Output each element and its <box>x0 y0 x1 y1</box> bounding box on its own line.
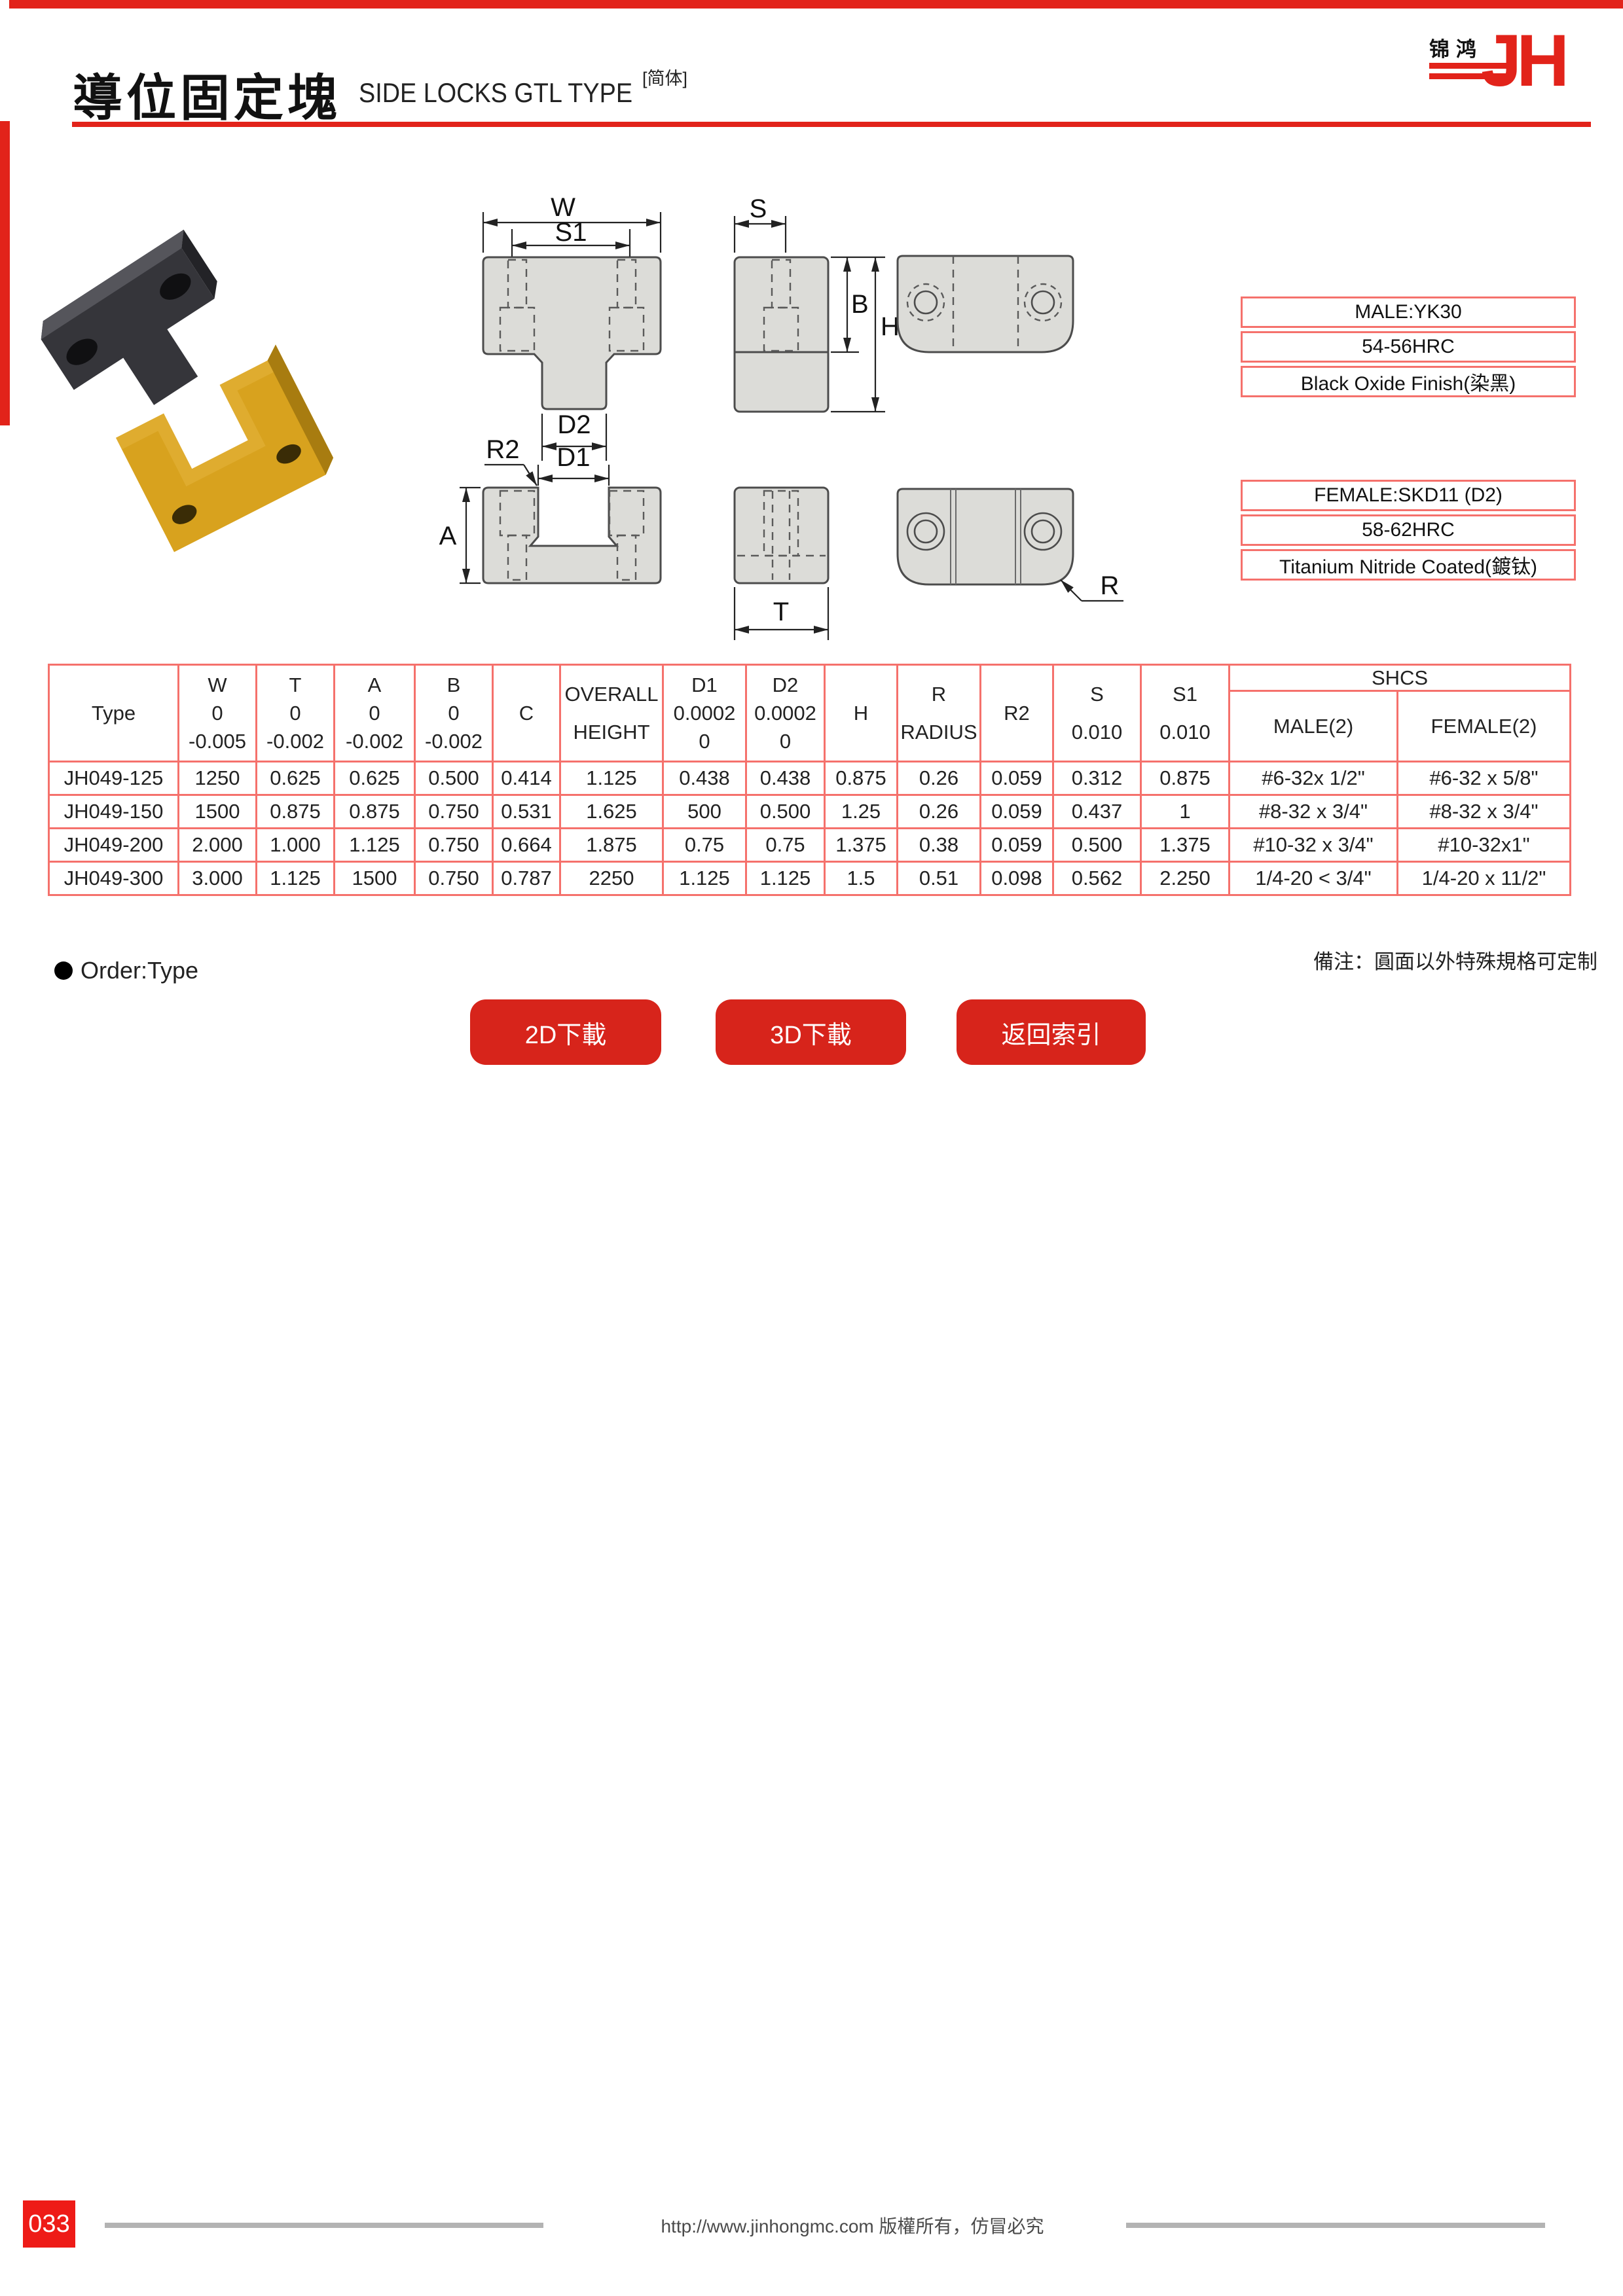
male-top-view <box>898 256 1073 352</box>
bullet-icon <box>54 961 73 980</box>
table-row: JH049-300 3.000 1.125 1500 0.750 0.787 2… <box>49 862 1571 895</box>
male-part-photo <box>33 230 255 437</box>
female-spec-finish: Titanium Nitride Coated(鍍钛) <box>1241 549 1576 581</box>
male-spec-hardness: 54-56HRC <box>1241 331 1576 363</box>
product-photo <box>33 230 339 552</box>
male-spec-finish: Black Oxide Finish(染黑) <box>1241 366 1576 397</box>
table-row: JH049-150 1500 0.875 0.875 0.750 0.531 1… <box>49 795 1571 829</box>
dim-label-s: S <box>750 194 767 223</box>
cell-type: JH049-125 <box>49 762 179 795</box>
dim-label-b: B <box>851 290 869 319</box>
edition-tag: [简体] <box>642 64 687 90</box>
col-header-w: W0-0.005 <box>179 665 257 762</box>
col-header-overall-height: OVERALLHEIGHT <box>560 665 663 762</box>
back-to-index-button[interactable]: 返回索引 <box>957 999 1146 1065</box>
col-header-s: S0.010 <box>1053 665 1141 762</box>
catalog-page: W S1 D2 D1 R2 A <box>0 0 1623 2296</box>
footer-divider-right <box>1126 2223 1545 2228</box>
dim-label-d1: D1 <box>556 443 590 472</box>
dim-label-t: T <box>773 598 789 626</box>
female-top-view: R <box>898 489 1123 601</box>
col-header-t: T0-0.002 <box>257 665 335 762</box>
cell-type: JH049-200 <box>49 829 179 862</box>
female-spec-material: FEMALE:SKD11 (D2) <box>1241 480 1576 511</box>
cell-type: JH049-300 <box>49 862 179 895</box>
col-header-r2: R2 <box>981 665 1053 762</box>
table-row: JH049-200 2.000 1.000 1.125 0.750 0.664 … <box>49 829 1571 862</box>
dim-label-a: A <box>439 522 457 550</box>
download-2d-button[interactable]: 2D下載 <box>470 999 661 1065</box>
table-row: JH049-125 1250 0.625 0.625 0.500 0.414 1… <box>49 762 1571 795</box>
col-header-s1: S10.010 <box>1141 665 1230 762</box>
female-spec-box: FEMALE:SKD11 (D2) 58-62HRC Titanium Nitr… <box>1241 480 1576 584</box>
col-header-d2: D20.00020 <box>746 665 825 762</box>
col-header-h: H <box>825 665 898 762</box>
dim-label-d2: D2 <box>557 410 591 439</box>
male-spec-box: MALE:YK30 54-56HRC Black Oxide Finish(染黑… <box>1241 296 1576 401</box>
col-header-type: Type <box>49 665 179 762</box>
dim-label-s1: S1 <box>555 218 587 247</box>
logo-cn-text: 锦鸿 <box>1429 33 1483 62</box>
col-header-a: A0-0.002 <box>335 665 415 762</box>
female-side-view: T <box>735 488 828 640</box>
col-header-r-radius: RRADIUS <box>898 665 981 762</box>
page-title-cn: 導位固定塊 <box>73 58 341 130</box>
logo-jh-mark: JH <box>1481 18 1564 103</box>
download-3d-button[interactable]: 3D下載 <box>716 999 906 1065</box>
remark-note: 備注：圓面以外特殊規格可定制 <box>1270 945 1597 975</box>
col-header-b: B0-0.002 <box>415 665 493 762</box>
spec-table: Type W0-0.005 T0-0.002 A0-0.002 B0-0.002… <box>48 664 1569 896</box>
col-header-shcs: SHCS <box>1230 665 1571 691</box>
male-front-view: W S1 D2 <box>483 193 661 461</box>
dim-label-r2: R2 <box>486 435 519 464</box>
male-spec-material: MALE:YK30 <box>1241 296 1576 328</box>
order-note: Order:Type <box>54 957 198 984</box>
col-header-female: FEMALE(2) <box>1398 691 1571 762</box>
page-number-badge: 033 <box>23 2200 75 2248</box>
left-accent-bar <box>0 121 10 425</box>
col-header-c: C <box>493 665 560 762</box>
order-note-text: Order:Type <box>81 957 198 984</box>
female-front-view: D1 R2 A <box>439 435 661 583</box>
col-header-d1: D10.00020 <box>663 665 746 762</box>
col-header-male: MALE(2) <box>1230 691 1398 762</box>
page-title-en: SIDE LOCKS GTL TYPE <box>359 77 632 109</box>
top-accent-bar <box>9 0 1623 9</box>
cell-type: JH049-150 <box>49 795 179 829</box>
female-spec-hardness: 58-62HRC <box>1241 514 1576 546</box>
male-side-view: S B H <box>735 194 900 412</box>
dim-label-r: R <box>1101 571 1120 600</box>
footer-divider-left <box>105 2223 543 2228</box>
footer-copyright: http://www.jinhongmc.com 版權所有，仿冒必究 <box>643 2212 1062 2238</box>
